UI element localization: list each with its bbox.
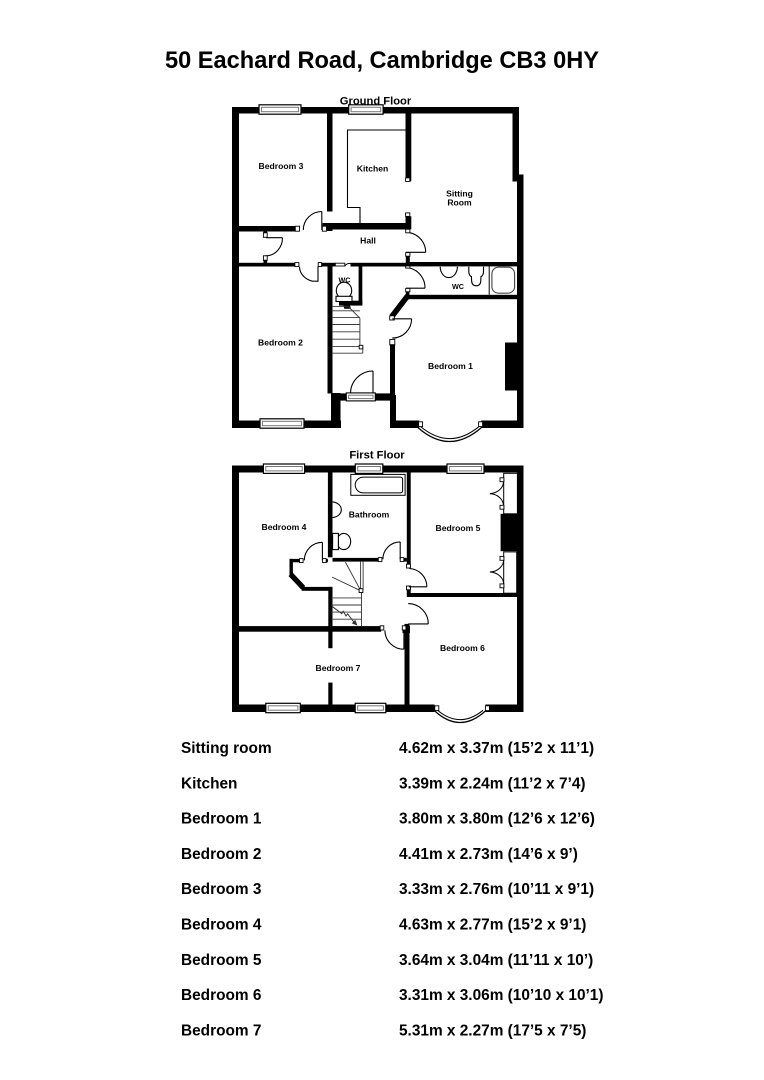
svg-text:Bathroom: Bathroom <box>349 510 390 520</box>
svg-text:4.62m x 3.37m (15’2 x 11’1): 4.62m x 3.37m (15’2 x 11’1) <box>399 740 594 757</box>
svg-text:3.33m x 2.76m (10’11 x 9’1): 3.33m x 2.76m (10’11 x 9’1) <box>399 881 594 898</box>
svg-text:Bedroom 4: Bedroom 4 <box>262 522 307 532</box>
svg-text:Bedroom 3: Bedroom 3 <box>181 881 261 898</box>
svg-text:4.41m x 2.73m (14’6 x 9’): 4.41m x 2.73m (14’6 x 9’) <box>399 846 578 863</box>
svg-text:Bedroom 6: Bedroom 6 <box>440 643 485 653</box>
svg-text:4.63m x 2.77m (15’2 x 9’1): 4.63m x 2.77m (15’2 x 9’1) <box>399 917 586 934</box>
svg-text:Bedroom 5: Bedroom 5 <box>181 952 262 969</box>
svg-text:First Floor: First Floor <box>349 450 405 462</box>
svg-text:3.64m x 3.04m (11’11 x 10’): 3.64m x 3.04m (11’11 x 10’) <box>399 952 593 969</box>
svg-text:WC: WC <box>452 282 464 291</box>
svg-text:50 Eachard Road, Cambridge CB3: 50 Eachard Road, Cambridge CB3 0HY <box>165 48 599 74</box>
svg-text:Bedroom 7: Bedroom 7 <box>181 1022 261 1039</box>
svg-text:Bedroom 1: Bedroom 1 <box>428 361 473 371</box>
svg-text:Bedroom 3: Bedroom 3 <box>259 161 304 171</box>
svg-text:Bedroom 4: Bedroom 4 <box>181 917 262 934</box>
svg-text:Kitchen: Kitchen <box>357 164 389 174</box>
svg-text:Bedroom 1: Bedroom 1 <box>181 811 262 828</box>
svg-text:Kitchen: Kitchen <box>181 775 237 792</box>
svg-text:5.31m x 2.27m (17’5 x 7’5): 5.31m x 2.27m (17’5 x 7’5) <box>399 1022 586 1039</box>
svg-text:3.31m x 3.06m (10’10 x 10’1): 3.31m x 3.06m (10’10 x 10’1) <box>399 987 604 1004</box>
svg-text:Sitting room: Sitting room <box>181 740 272 757</box>
svg-text:Bedroom 5: Bedroom 5 <box>436 523 481 533</box>
svg-text:Bedroom 2: Bedroom 2 <box>258 337 303 347</box>
svg-text:Bedroom 6: Bedroom 6 <box>181 987 261 1004</box>
svg-text:Room: Room <box>447 197 472 207</box>
svg-text:Bedroom 2: Bedroom 2 <box>181 846 261 863</box>
svg-text:Hall: Hall <box>360 235 376 245</box>
svg-text:3.80m x 3.80m (12’6 x 12’6): 3.80m x 3.80m (12’6 x 12’6) <box>399 811 595 828</box>
svg-text:3.39m x 2.24m (11’2 x 7’4): 3.39m x 2.24m (11’2 x 7’4) <box>399 775 586 792</box>
svg-text:Bedroom 7: Bedroom 7 <box>316 663 361 673</box>
svg-text:WC: WC <box>339 275 351 284</box>
